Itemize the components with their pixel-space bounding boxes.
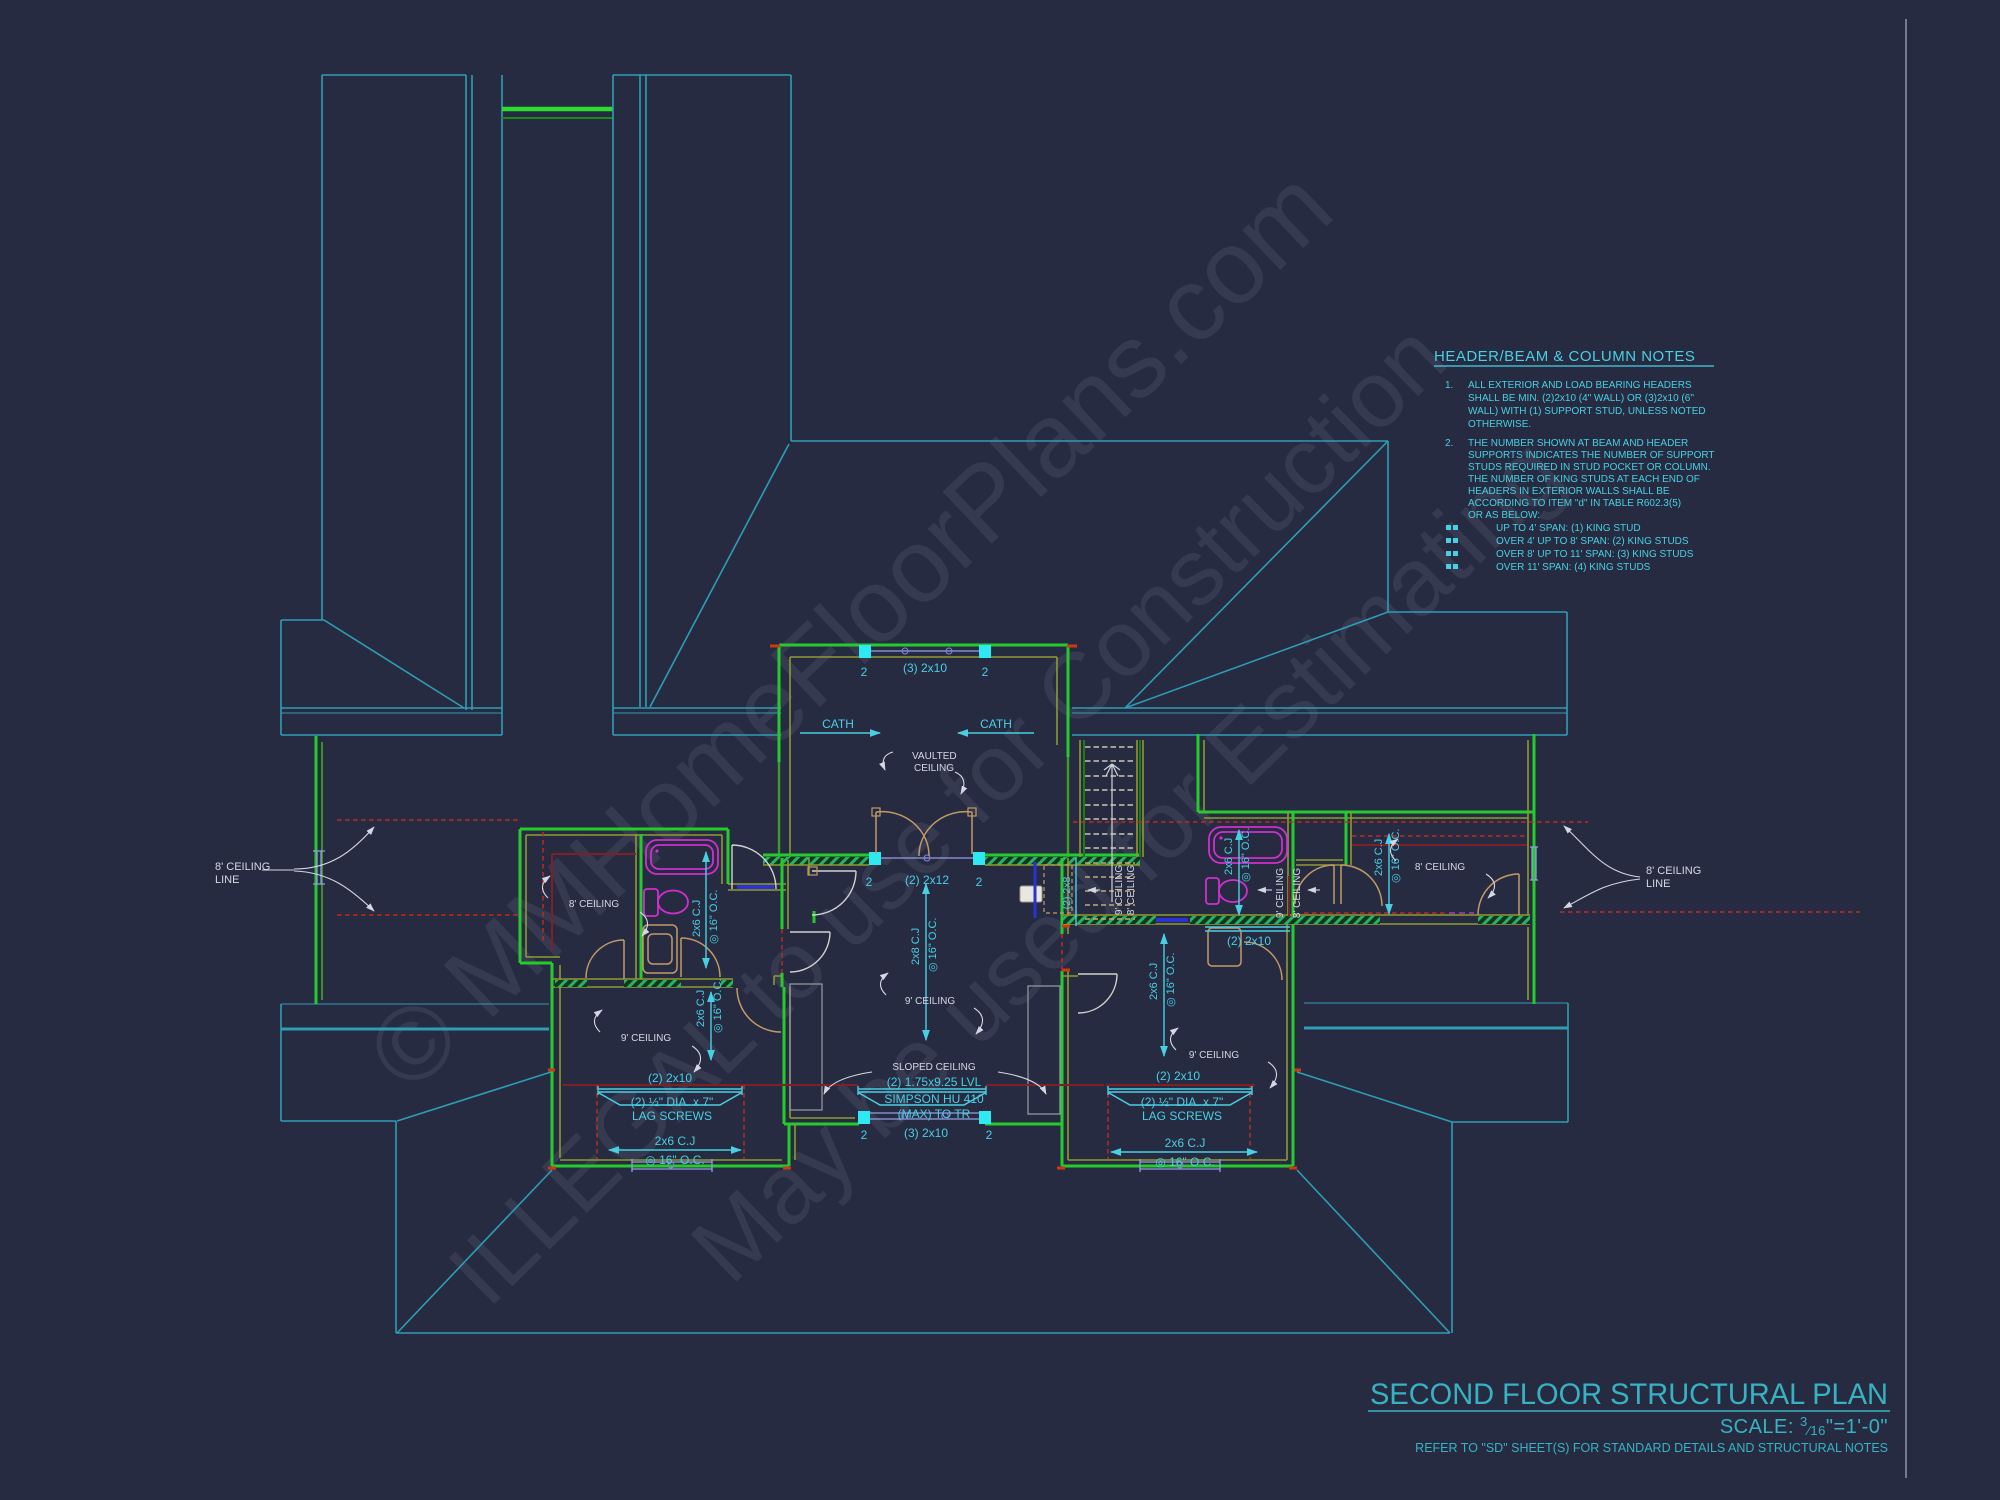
- svg-text:(2) 1.75x9.25 LVL: (2) 1.75x9.25 LVL: [887, 1075, 982, 1089]
- svg-text:OVER 4' UP TO 8' SPAN: (2) KIN: OVER 4' UP TO 8' SPAN: (2) KING STUDS: [1496, 536, 1689, 547]
- svg-text:2: 2: [976, 875, 983, 889]
- svg-text:OVER 11' SPAN: (4) KING STUDS: OVER 11' SPAN: (4) KING STUDS: [1496, 562, 1651, 573]
- svg-text:VAULTED: VAULTED: [912, 751, 957, 762]
- svg-text:(3) 2x10: (3) 2x10: [904, 1126, 948, 1140]
- svg-text:8' CEILING: 8' CEILING: [569, 899, 619, 910]
- svg-text:(2) ½" DIA. x 7": (2) ½" DIA. x 7": [631, 1095, 714, 1109]
- svg-text:STUDS REQUIRED IN STUD POCKET: STUDS REQUIRED IN STUD POCKET OR COLUMN.: [1468, 462, 1711, 473]
- svg-text:9' CEILING: 9' CEILING: [1114, 865, 1125, 915]
- svg-text:SLOPED CEILING: SLOPED CEILING: [892, 1062, 976, 1073]
- svg-text:(2) 2x10: (2) 2x10: [1156, 1069, 1200, 1083]
- svg-text:SECOND FLOOR STRUCTURAL PLAN: SECOND FLOOR STRUCTURAL PLAN: [1370, 1378, 1888, 1411]
- svg-text:REFER TO "SD" SHEET(S) FOR STA: REFER TO "SD" SHEET(S) FOR STANDARD DETA…: [1415, 1441, 1888, 1455]
- svg-text:2: 2: [986, 1128, 993, 1142]
- svg-text:LAG SCREWS: LAG SCREWS: [1142, 1109, 1222, 1123]
- svg-text:2x6 C.J: 2x6 C.J: [1165, 1136, 1206, 1150]
- svg-text:◎ 16" O.C.: ◎ 16" O.C.: [1165, 953, 1177, 1007]
- svg-text:◎ 16" O.C.: ◎ 16" O.C.: [708, 890, 720, 944]
- svg-text:◎ 16" O.C.: ◎ 16" O.C.: [1155, 1155, 1214, 1169]
- svg-text:8' CEILING: 8' CEILING: [1415, 862, 1465, 873]
- svg-text:2: 2: [861, 1128, 868, 1142]
- svg-text:2: 2: [866, 875, 873, 889]
- svg-text:8' CEILING: 8' CEILING: [1292, 868, 1303, 918]
- svg-text:(2) ½" DIA. x 7": (2) ½" DIA. x 7": [1141, 1095, 1224, 1109]
- svg-text:(2) 2x8: (2) 2x8: [1061, 877, 1073, 910]
- svg-text:2x6 C.J: 2x6 C.J: [695, 990, 707, 1027]
- svg-text:2x6 C.J: 2x6 C.J: [1373, 839, 1385, 876]
- svg-text:THE NUMBER SHOWN AT BEAM AND H: THE NUMBER SHOWN AT BEAM AND HEADER: [1468, 438, 1688, 449]
- svg-text:LINE: LINE: [215, 874, 239, 886]
- svg-text:(2) 2x10: (2) 2x10: [648, 1071, 692, 1085]
- svg-text:SUPPORTS INDICATES THE NUMBER: SUPPORTS INDICATES THE NUMBER OF SUPPORT: [1468, 450, 1715, 461]
- svg-text:LINE: LINE: [1646, 878, 1670, 890]
- svg-text:2: 2: [982, 665, 989, 679]
- svg-text:◎ 16" O.C.: ◎ 16" O.C.: [1240, 828, 1252, 882]
- svg-text:OVER 8' UP TO 11' SPAN: (3) KI: OVER 8' UP TO 11' SPAN: (3) KING STUDS: [1496, 549, 1694, 560]
- svg-text:SIMPSON HU 410: SIMPSON HU 410: [884, 1092, 984, 1106]
- svg-text:8' CEILING: 8' CEILING: [215, 861, 270, 873]
- svg-text:(MAX) TO TR: (MAX) TO TR: [898, 1107, 971, 1121]
- svg-text:8' CEILING: 8' CEILING: [1646, 865, 1701, 877]
- svg-text:◎ 16" O.C.: ◎ 16" O.C.: [712, 979, 724, 1033]
- svg-text:2x6 C.J: 2x6 C.J: [1223, 838, 1235, 875]
- svg-text:9' CEILING: 9' CEILING: [1189, 1050, 1239, 1061]
- svg-text:2x8 C.J: 2x8 C.J: [910, 928, 922, 965]
- svg-text:SHALL BE MIN. (2)2x10 (4" WALL: SHALL BE MIN. (2)2x10 (4" WALL) OR (3)2x…: [1468, 393, 1694, 404]
- svg-text:(3) 2x10: (3) 2x10: [903, 661, 947, 675]
- svg-text:ACCORDING TO ITEM "d" IN TABLE: ACCORDING TO ITEM "d" IN TABLE R602.3(5): [1468, 498, 1681, 509]
- svg-text:2x6 C.J: 2x6 C.J: [1148, 963, 1160, 1000]
- svg-text:(2) 2x10: (2) 2x10: [1227, 934, 1271, 948]
- svg-text:UP TO 4' SPAN: (1) KING STUD: UP TO 4' SPAN: (1) KING STUD: [1496, 523, 1641, 534]
- svg-text:◎ 16" O.C.: ◎ 16" O.C.: [927, 918, 939, 972]
- svg-text:CEILING: CEILING: [914, 763, 954, 774]
- svg-text:OTHERWISE.: OTHERWISE.: [1468, 419, 1531, 430]
- svg-text:HEADER/BEAM & COLUMN NOTES: HEADER/BEAM & COLUMN NOTES: [1434, 348, 1695, 365]
- svg-text:8' CEILING: 8' CEILING: [1126, 865, 1137, 915]
- svg-text:2.: 2.: [1445, 438, 1453, 449]
- svg-text:ALL EXTERIOR AND LOAD BEARING: ALL EXTERIOR AND LOAD BEARING HEADERS: [1468, 380, 1692, 391]
- svg-text:WALL) WITH (1) SUPPORT STUD, U: WALL) WITH (1) SUPPORT STUD, UNLESS NOTE…: [1468, 406, 1706, 417]
- svg-text:CATH: CATH: [980, 717, 1012, 731]
- svg-text:◎ 16" O.C.: ◎ 16" O.C.: [645, 1153, 704, 1167]
- svg-text:9' CEILING: 9' CEILING: [905, 996, 955, 1007]
- svg-text:THE NUMBER OF KING STUDS AT EA: THE NUMBER OF KING STUDS AT EACH END OF: [1468, 474, 1700, 485]
- svg-text:2x6 C.J: 2x6 C.J: [691, 900, 703, 937]
- svg-text:(2) 2x12: (2) 2x12: [905, 873, 949, 887]
- svg-text:2x6 C.J: 2x6 C.J: [655, 1134, 696, 1148]
- svg-text:9' CEILING: 9' CEILING: [1275, 868, 1286, 918]
- svg-text:OR AS BELOW:: OR AS BELOW:: [1468, 510, 1540, 521]
- svg-text:2: 2: [861, 665, 868, 679]
- svg-text:HEADERS IN EXTERIOR WALLS SHAL: HEADERS IN EXTERIOR WALLS SHALL BE: [1468, 486, 1670, 497]
- svg-text:9' CEILING: 9' CEILING: [621, 1033, 671, 1044]
- svg-text:CATH: CATH: [822, 717, 854, 731]
- svg-text:LAG SCREWS: LAG SCREWS: [632, 1109, 712, 1123]
- svg-text:1.: 1.: [1445, 380, 1453, 391]
